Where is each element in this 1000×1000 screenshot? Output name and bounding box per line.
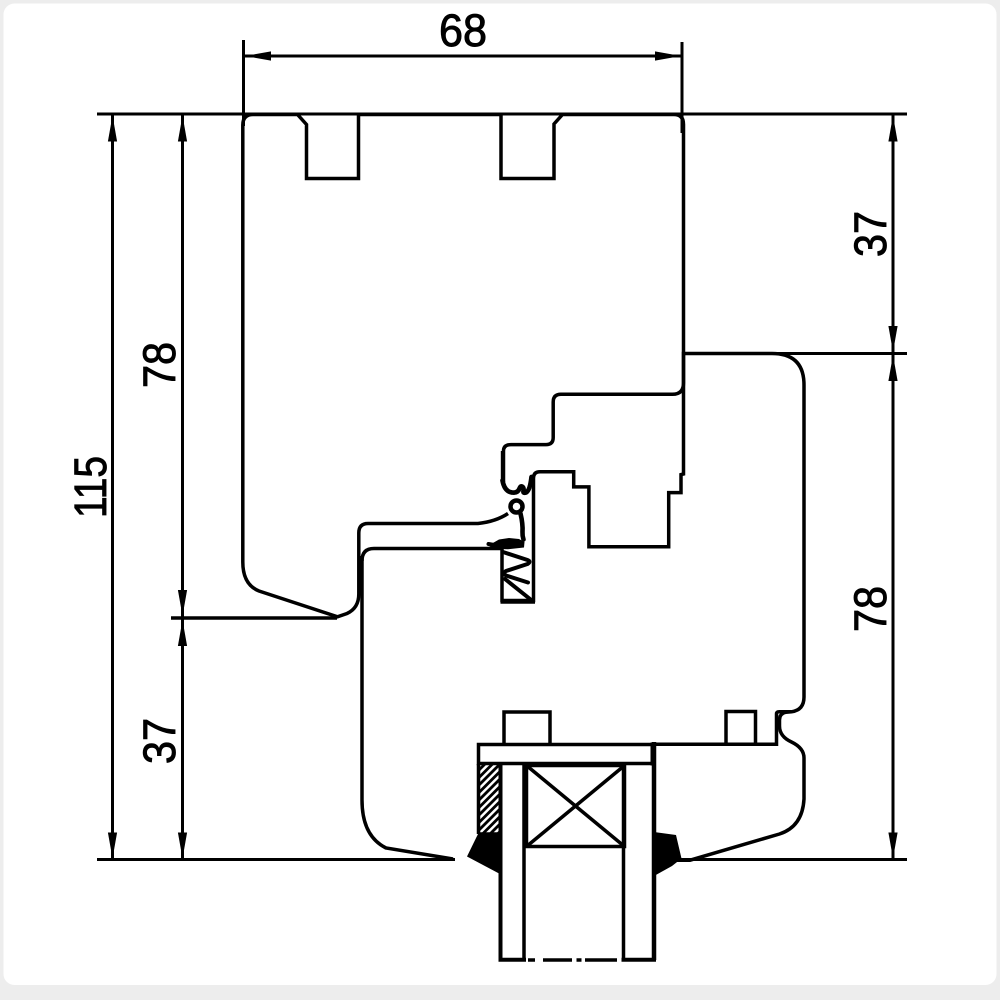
svg-text:78: 78 [134, 342, 185, 388]
svg-text:37: 37 [845, 211, 896, 257]
svg-text:68: 68 [439, 5, 487, 56]
svg-text:37: 37 [134, 718, 185, 764]
svg-text:78: 78 [845, 586, 896, 632]
svg-text:115: 115 [65, 456, 116, 518]
